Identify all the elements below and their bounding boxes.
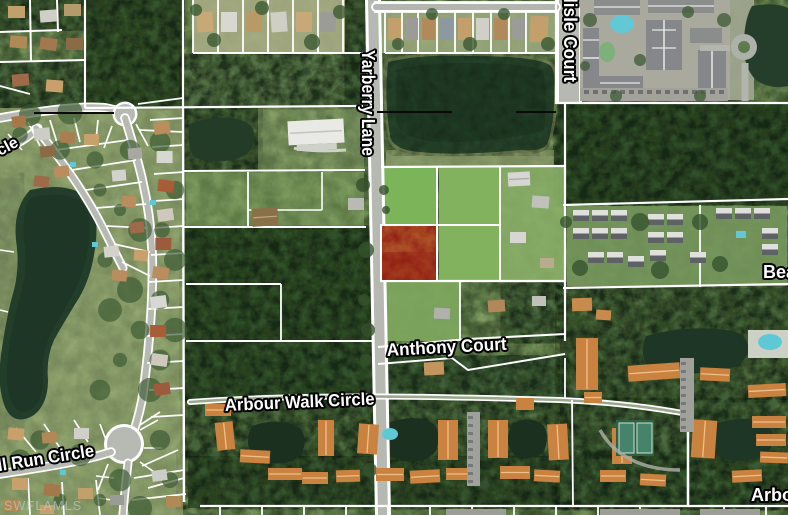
svg-text:Bea: Bea xyxy=(763,262,788,282)
svg-text:SWFLAMLS: SWFLAMLS xyxy=(4,499,82,513)
svg-text:Yarberry Lane: Yarberry Lane xyxy=(358,50,378,156)
svg-text:Arbo: Arbo xyxy=(751,485,788,505)
svg-text:lisle Court: lisle Court xyxy=(560,0,580,82)
